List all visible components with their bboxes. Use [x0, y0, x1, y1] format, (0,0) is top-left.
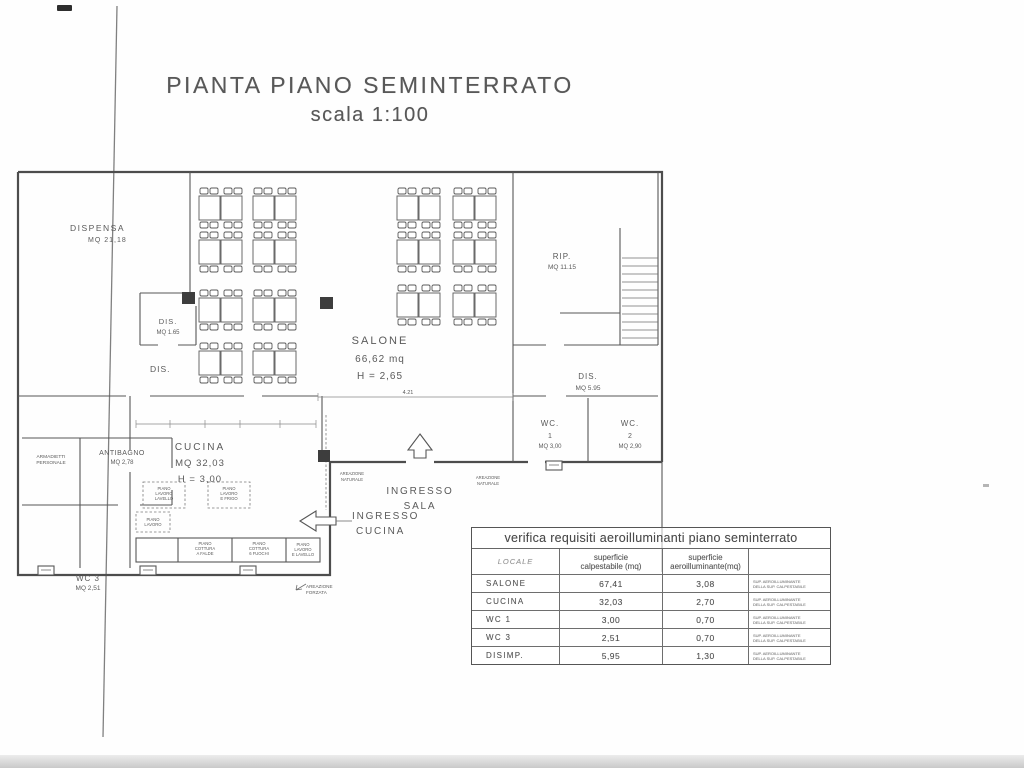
col-header-line: superficie — [594, 553, 628, 562]
room-label-salone: SALONE — [352, 335, 409, 347]
room-num-wc1: 1 — [548, 433, 552, 440]
col-header-aeroilluminante: superficie aeroilluminante(mq) — [663, 549, 749, 574]
counter-label: A FALDE — [197, 551, 214, 556]
counter-label: E LAVELLO — [292, 552, 315, 557]
counter-label: 6 FUOCHI — [249, 551, 269, 556]
table-group — [453, 188, 496, 228]
table-group — [253, 188, 296, 228]
ingresso-cucina-label-2: CUCINA — [356, 526, 405, 537]
areazione-arrow-icon — [296, 584, 306, 590]
table-group — [199, 343, 242, 383]
room-area-dispensa: MQ 21,18 — [88, 237, 127, 244]
verifica-title: verifica requisiti aeroilluminanti piano… — [472, 528, 830, 549]
room-area-salone: 66,62 mq — [355, 354, 405, 365]
cell-note: SUP. AEROILLUMINANTE DELLA SUP. CALPESTA… — [749, 647, 830, 664]
cell-aeroilluminante: 3,08 — [663, 575, 749, 592]
room-label-wc1: WC. — [541, 419, 560, 428]
cell-locale: DISIMP. — [472, 647, 560, 664]
room-label-antibagno: ANTIBAGNO — [99, 450, 145, 457]
dimension-label: 4.21 — [403, 390, 414, 396]
table-group — [199, 188, 242, 228]
col-header-locale: LOCALE — [472, 549, 560, 574]
table-group — [199, 232, 242, 272]
verifica-row-cucina: CUCINA 32,03 2,70 SUP. AEROILLUMINANTE D… — [472, 593, 830, 611]
staircase — [622, 258, 658, 338]
cell-locale: CUCINA — [472, 593, 560, 610]
room-area-dis1: MQ 1.65 — [156, 330, 180, 336]
note-line: DELLA SUP. CALPESTABILE — [753, 602, 806, 607]
room-label-armadietti-2: PERSONALE — [36, 460, 65, 466]
cell-note: SUP. AEROILLUMINANTE DELLA SUP. CALPESTA… — [749, 593, 830, 610]
table-group — [397, 285, 440, 325]
room-height-salone: H = 2,65 — [357, 371, 403, 382]
table-group — [253, 343, 296, 383]
room-label-rip: RIP. — [553, 252, 572, 261]
verifica-row-wc3: WC 3 2,51 0,70 SUP. AEROILLUMINANTE DELL… — [472, 629, 830, 647]
scan-edge-shadow — [0, 755, 1024, 768]
cell-note: SUP. AEROILLUMINANTE DELLA SUP. CALPESTA… — [749, 611, 830, 628]
areazione-nat1-label-2: NATURALE — [341, 477, 363, 482]
room-area-cucina: MQ 32,03 — [175, 458, 225, 469]
cell-aeroilluminante: 1,30 — [663, 647, 749, 664]
cell-note: SUP. AEROILLUMINANTE DELLA SUP. CALPESTA… — [749, 575, 830, 592]
cell-aeroilluminante: 2,70 — [663, 593, 749, 610]
col-header-empty — [749, 549, 830, 574]
room-area-wc3: MQ 2,51 — [76, 585, 101, 592]
scanned-floor-plan-page: PIANTA PIANO SEMINTERRATO scala 1:100 — [0, 0, 1024, 768]
counter-label: E FRIGO — [220, 496, 238, 501]
table-group — [453, 285, 496, 325]
verifica-header-row: LOCALE superficie calpestabile (mq) supe… — [472, 549, 830, 575]
table-group — [397, 188, 440, 228]
areazione-nat1-label-1: AREAZIONE — [340, 471, 364, 476]
cell-note: SUP. AEROILLUMINANTE DELLA SUP. CALPESTA… — [749, 629, 830, 646]
col-header-line: superficie — [688, 553, 722, 562]
table-group — [453, 232, 496, 272]
note-line: DELLA SUP. CALPESTABILE — [753, 584, 806, 589]
cell-aeroilluminante: 0,70 — [663, 629, 749, 646]
cell-calpestabile: 3,00 — [560, 611, 663, 628]
cell-locale: WC 3 — [472, 629, 560, 646]
note-line: DELLA SUP. CALPESTABILE — [753, 656, 806, 661]
room-label-cucina: CUCINA — [175, 442, 225, 453]
room-num-wc2: 2 — [628, 433, 632, 440]
room-height-cucina: H = 3,00 — [178, 474, 222, 485]
cell-aeroilluminante: 0,70 — [663, 611, 749, 628]
cell-locale: SALONE — [472, 575, 560, 592]
room-label-dis2: DIS. — [150, 364, 171, 374]
verifica-row-wc1: WC 1 3,00 0,70 SUP. AEROILLUMINANTE DELL… — [472, 611, 830, 629]
table-group — [199, 290, 242, 330]
room-label-dispensa: DISPENSA — [70, 223, 125, 233]
cell-calpestabile: 5,95 — [560, 647, 663, 664]
room-label-armadietti-1: ARMADIETTI — [36, 454, 65, 460]
ingresso-sala-label-1: INGRESSO — [386, 486, 453, 497]
col-header-line: aeroilluminante(mq) — [670, 562, 741, 571]
note-line: DELLA SUP. CALPESTABILE — [753, 620, 806, 625]
scan-artifact-topleft — [57, 5, 72, 11]
room-area-antibagno: MQ 2,78 — [110, 460, 134, 466]
col-header-calpestabile: superficie calpestabile (mq) — [560, 549, 663, 574]
room-area-wc2: MQ 2,90 — [618, 444, 642, 450]
scan-artifact-right — [983, 484, 989, 487]
table-group — [253, 290, 296, 330]
room-area-rip: MQ 11.15 — [548, 264, 576, 271]
room-label-dis1: DIS. — [159, 317, 178, 326]
cell-calpestabile: 67,41 — [560, 575, 663, 592]
room-area-wc1: MQ 3,00 — [538, 444, 562, 450]
room-label-dis3: DIS. — [578, 372, 598, 381]
verifica-table: verifica requisiti aeroilluminanti piano… — [471, 527, 831, 665]
note-line: DELLA SUP. CALPESTABILE — [753, 638, 806, 643]
counter-label: LAVORO — [144, 522, 162, 527]
ingresso-cucina-label-1: INGRESSO — [352, 511, 419, 522]
ingresso-sala-arrow-icon — [408, 434, 432, 458]
areazione-nat2-label-1: AREAZIONE — [476, 475, 500, 480]
room-label-wc3: WC 3 — [76, 574, 100, 583]
salone-tables — [199, 188, 496, 383]
verifica-row-disimp: DISIMP. 5,95 1,30 SUP. AEROILLUMINANTE D… — [472, 647, 830, 664]
verifica-row-salone: SALONE 67,41 3,08 SUP. AEROILLUMINANTE D… — [472, 575, 830, 593]
table-group — [253, 232, 296, 272]
areazione-forzata-label-1: AREAZIONE — [306, 584, 333, 589]
counter-label: LAVELLO — [155, 496, 174, 501]
col-header-line: calpestabile (mq) — [581, 562, 642, 571]
cell-calpestabile: 32,03 — [560, 593, 663, 610]
cell-calpestabile: 2,51 — [560, 629, 663, 646]
room-area-dis3: MQ 5.95 — [576, 385, 601, 392]
cell-locale: WC 1 — [472, 611, 560, 628]
areazione-nat2-label-2: NATURALE — [477, 481, 499, 486]
areazione-forzata-label-2: FORZATA — [306, 590, 328, 595]
table-group — [397, 232, 440, 272]
room-label-wc2: WC. — [621, 419, 640, 428]
